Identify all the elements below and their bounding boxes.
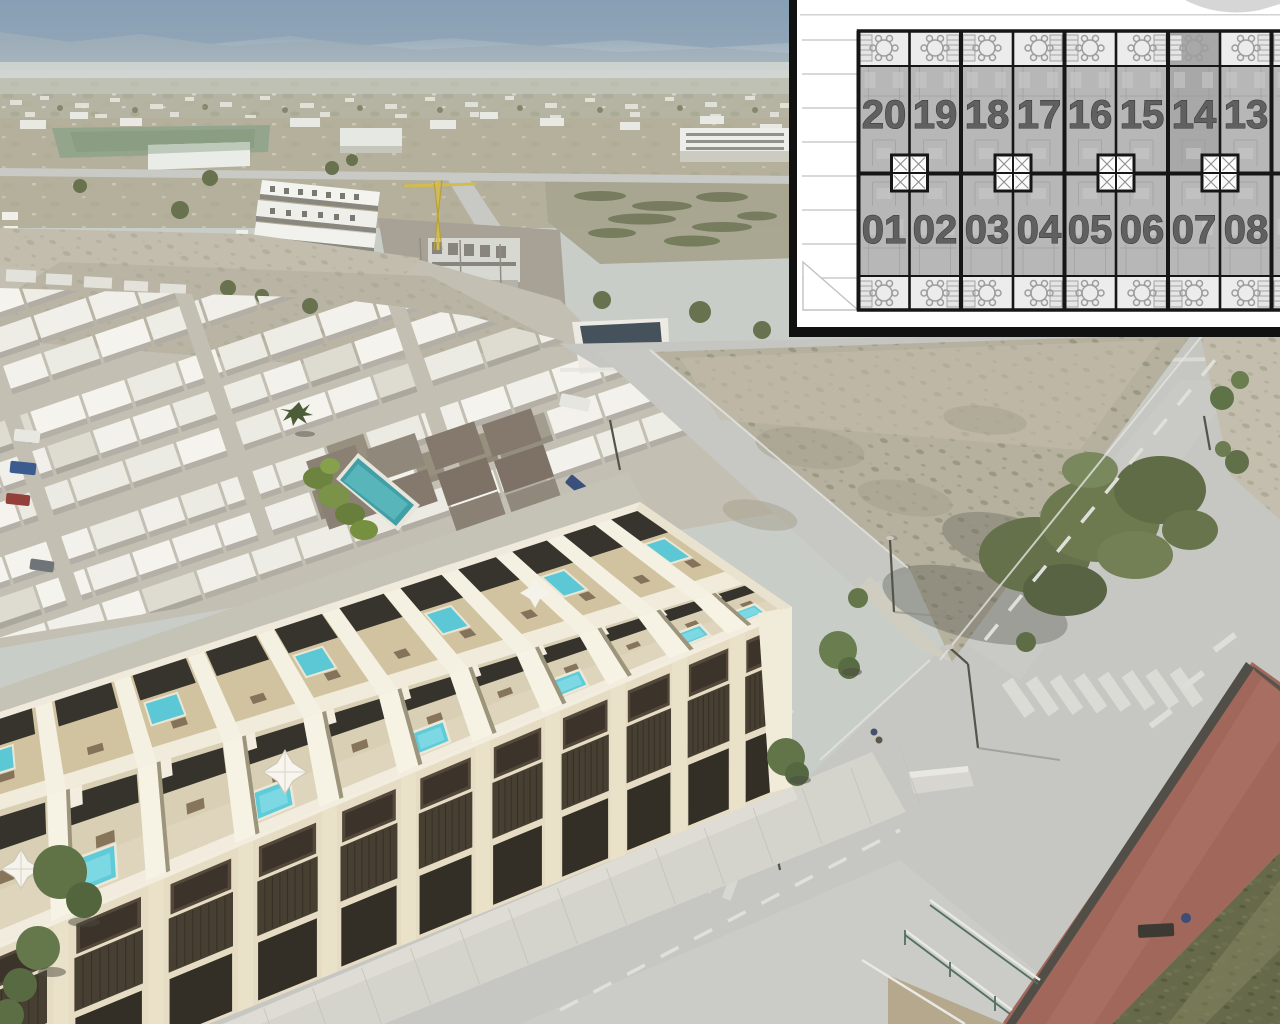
svg-text:13: 13	[1224, 93, 1269, 137]
svg-text:14: 14	[1172, 93, 1217, 137]
svg-text:01: 01	[862, 208, 907, 252]
svg-text:07: 07	[1172, 208, 1217, 252]
svg-text:17: 17	[1017, 93, 1062, 137]
svg-text:04: 04	[1017, 208, 1062, 252]
svg-text:18: 18	[965, 93, 1010, 137]
svg-text:05: 05	[1068, 208, 1113, 252]
svg-text:02: 02	[913, 208, 958, 252]
svg-text:20: 20	[862, 93, 907, 137]
svg-text:03: 03	[965, 208, 1010, 252]
svg-text:08: 08	[1224, 208, 1269, 252]
svg-text:19: 19	[913, 93, 958, 137]
svg-text:16: 16	[1068, 93, 1113, 137]
svg-text:15: 15	[1120, 93, 1165, 137]
svg-text:06: 06	[1120, 208, 1165, 252]
